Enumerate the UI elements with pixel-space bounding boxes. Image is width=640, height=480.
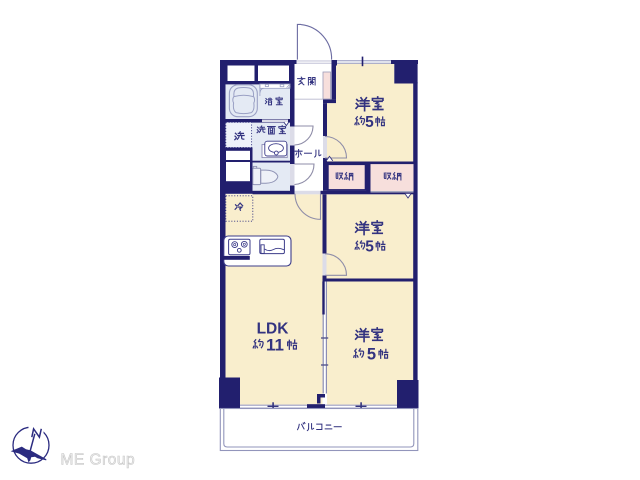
svg-text:5: 5	[365, 238, 374, 255]
svg-text:5: 5	[367, 346, 376, 364]
svg-text:11: 11	[266, 336, 284, 355]
svg-text:ME Group: ME Group	[61, 452, 136, 469]
svg-text:5: 5	[365, 114, 374, 131]
